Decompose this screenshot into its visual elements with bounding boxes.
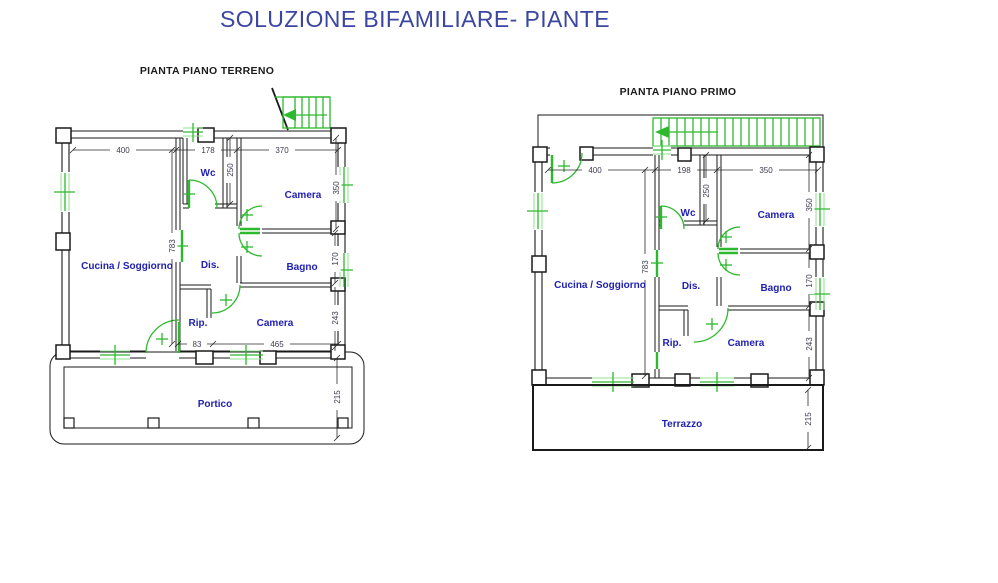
- room-label-bagno: Bagno: [286, 262, 317, 273]
- svg-text:350: 350: [332, 181, 341, 195]
- room-label-rip: Rip.: [663, 338, 682, 349]
- room-label-wc: Wc: [201, 168, 216, 179]
- svg-text:250: 250: [702, 184, 711, 198]
- door-arc-icon: [146, 320, 179, 353]
- dimension-label: 243: [330, 305, 341, 331]
- room-label-camera: Camera: [758, 210, 795, 221]
- floor-plan-primo: PIANTA PIANO PRIMO: [527, 86, 830, 451]
- svg-text:198: 198: [677, 166, 691, 175]
- window-icon: [653, 140, 671, 160]
- stair-direction-arrow-icon: [283, 109, 296, 121]
- pillars-primo: [532, 147, 824, 387]
- dimension-label: 350: [753, 165, 779, 176]
- plan-title-terreno: PIANTA PIANO TERRENO: [140, 65, 274, 77]
- portico-column: [248, 418, 259, 428]
- dimensions-terreno: 400 178 370 250 350 783: [70, 135, 343, 441]
- walls-primo: [535, 148, 823, 385]
- dimension-label: 400: [110, 145, 136, 156]
- room-label-cucina: Cucina / Soggiorno: [81, 261, 173, 272]
- dimension-label: 783: [167, 233, 178, 259]
- door-arc-icon: [183, 180, 217, 208]
- svg-text:250: 250: [226, 163, 235, 177]
- dimension-label: 243: [804, 331, 815, 357]
- door-arc-icon: [694, 308, 728, 342]
- dimension-label: 400: [582, 165, 608, 176]
- floor-plan-terreno: PIANTA PIANO TERRENO: [50, 65, 364, 444]
- dimension-label: 170: [330, 246, 341, 272]
- room-label-camera: Camera: [728, 338, 765, 349]
- room-label-terrazzo: Terrazzo: [662, 419, 702, 430]
- svg-text:243: 243: [331, 311, 340, 325]
- window-icon: [230, 345, 263, 365]
- dimension-label: 215: [803, 406, 814, 432]
- dimension-label: 465: [264, 339, 290, 350]
- dimensions-primo: 400 198 350 250 350 783: [545, 152, 821, 451]
- portico-column: [148, 418, 159, 428]
- room-label-dis: Dis.: [682, 281, 701, 292]
- portico-column: [64, 418, 74, 428]
- svg-text:783: 783: [168, 239, 177, 253]
- dimension-label: 783: [640, 254, 651, 280]
- dimension-label: 250: [225, 157, 236, 183]
- portico-column: [338, 418, 348, 428]
- dimension-label: 83: [187, 339, 207, 350]
- window-icon: [54, 173, 75, 211]
- room-label-rip: Rip.: [189, 318, 208, 329]
- svg-text:350: 350: [759, 166, 773, 175]
- windows-primo: [527, 140, 830, 392]
- page: SOLUZIONE BIFAMILIARE- PIANTE PIANTA PIA…: [0, 0, 998, 583]
- room-label-dis: Dis.: [201, 260, 220, 271]
- room-label-camera: Camera: [285, 190, 322, 201]
- svg-text:215: 215: [804, 412, 813, 426]
- window-icon: [700, 372, 734, 392]
- dimension-label: 350: [804, 192, 815, 218]
- room-label-cucina: Cucina / Soggiorno: [554, 280, 646, 291]
- dimension-label: 215: [332, 384, 343, 410]
- dimension-label: 370: [269, 145, 295, 156]
- door-leaf-icon: [651, 250, 663, 277]
- svg-text:400: 400: [588, 166, 602, 175]
- double-door-arc-icon: [239, 206, 262, 256]
- portico-outline: [50, 352, 364, 444]
- dimension-label: 350: [331, 175, 342, 201]
- dimension-label: 178: [195, 145, 221, 156]
- stairs-icon: [538, 115, 823, 148]
- room-label-camera: Camera: [257, 318, 294, 329]
- svg-text:400: 400: [116, 146, 130, 155]
- door-leaf-icon: [176, 230, 188, 262]
- svg-text:350: 350: [805, 198, 814, 212]
- window-icon: [100, 345, 130, 365]
- dimension-label: 170: [804, 268, 815, 294]
- room-label-portico: Portico: [198, 399, 232, 410]
- svg-text:170: 170: [805, 274, 814, 288]
- room-label-wc: Wc: [681, 208, 696, 219]
- stair-direction-arrow-icon: [655, 126, 669, 138]
- room-label-bagno: Bagno: [760, 283, 791, 294]
- window-icon: [527, 193, 548, 229]
- dimension-label: 198: [671, 165, 697, 176]
- svg-text:370: 370: [275, 146, 289, 155]
- door-arc-icon: [552, 153, 582, 183]
- svg-text:83: 83: [193, 340, 202, 349]
- svg-text:783: 783: [641, 260, 650, 274]
- door-arc-icon: [212, 285, 240, 313]
- stairs-icon: [272, 88, 330, 130]
- plan-title-primo: PIANTA PIANO PRIMO: [620, 86, 737, 98]
- window-icon: [592, 372, 634, 392]
- terrazzo-outline: [533, 385, 823, 450]
- room-labels-primo: Wc Camera Cucina / Soggiorno Dis. Bagno …: [554, 208, 795, 430]
- svg-text:243: 243: [805, 337, 814, 351]
- svg-text:465: 465: [270, 340, 284, 349]
- dimension-label: 250: [701, 178, 712, 204]
- svg-text:215: 215: [333, 390, 342, 404]
- svg-text:170: 170: [331, 252, 340, 266]
- floor-plans-drawing: PIANTA PIANO TERRENO: [0, 0, 998, 583]
- svg-text:178: 178: [201, 146, 215, 155]
